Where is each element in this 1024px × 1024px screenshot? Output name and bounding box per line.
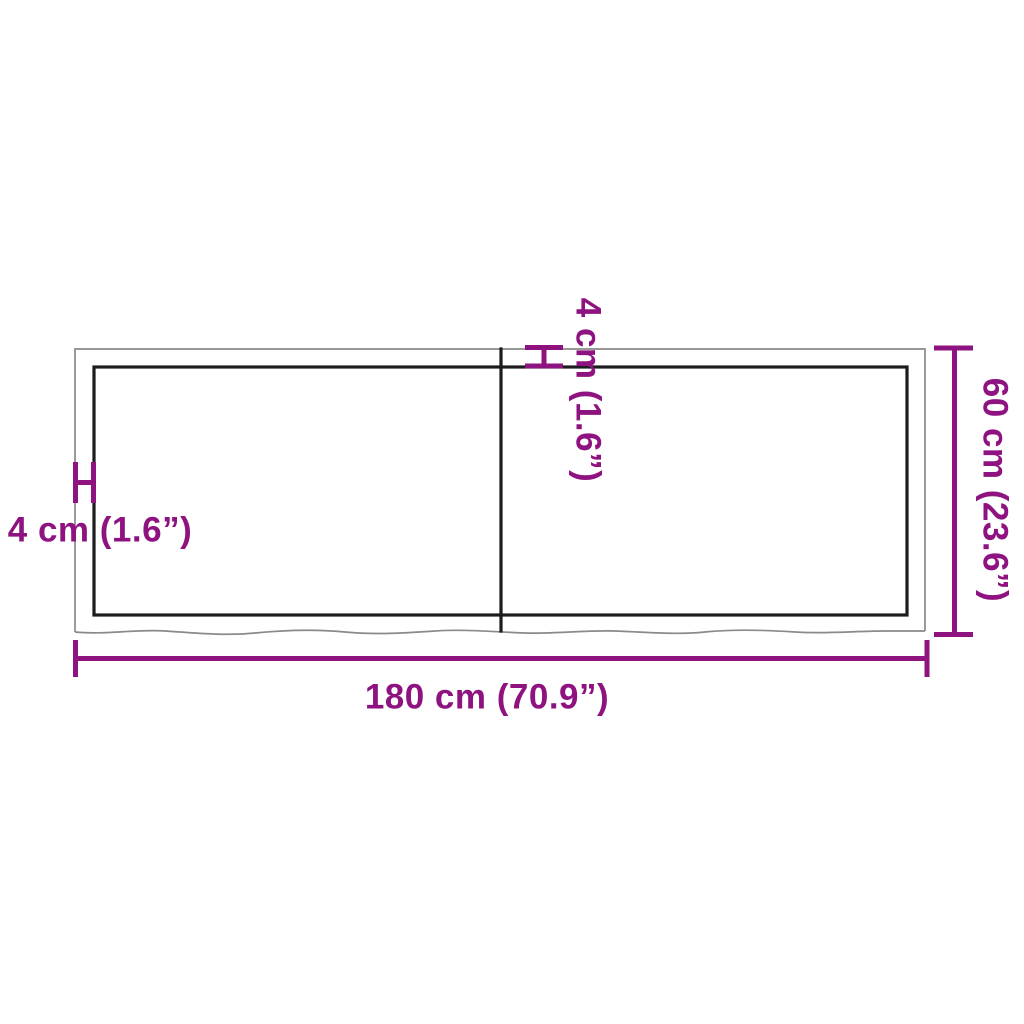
width-dimension-label: 180 cm (70.9”) <box>365 678 609 717</box>
thickness-top-label: 4 cm (1.6”) <box>569 298 608 482</box>
height-dimension-label: 60 cm (23.6”) <box>976 378 1015 602</box>
height-dimension-line <box>934 348 973 635</box>
width-dimension-line <box>76 640 928 677</box>
dimension-drawing-canvas: 180 cm (70.9”) 60 cm (23.6”) 4 cm (1.6”)… <box>0 0 1024 1024</box>
thickness-left-label: 4 cm (1.6”) <box>8 511 192 550</box>
thickness-marker-left <box>74 462 95 503</box>
product-dimension-diagram: 180 cm (70.9”) 60 cm (23.6”) 4 cm (1.6”)… <box>0 0 1024 1024</box>
thickness-marker-top <box>525 346 563 367</box>
